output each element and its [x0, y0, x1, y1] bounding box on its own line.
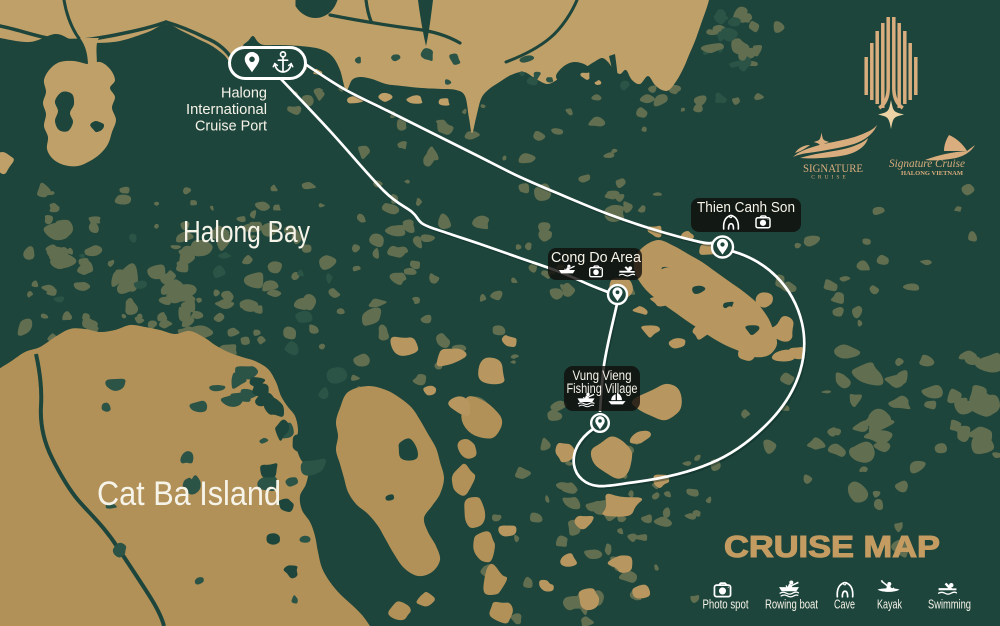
svg-text:Cong Do Area: Cong Do Area [551, 250, 642, 266]
svg-text:Kayak: Kayak [877, 598, 903, 612]
svg-text:Signature Cruise: Signature Cruise [889, 156, 966, 170]
svg-text:Halong Bay: Halong Bay [183, 214, 310, 249]
svg-text:Fishing Village: Fishing Village [567, 381, 638, 396]
svg-text:Photo spot: Photo spot [703, 598, 749, 612]
svg-text:Halong: Halong [221, 85, 267, 102]
svg-text:Cave: Cave [834, 598, 855, 612]
svg-text:HALONG VIETNAM: HALONG VIETNAM [901, 171, 963, 177]
svg-text:Rowing boat: Rowing boat [765, 598, 818, 612]
svg-text:Cruise Port: Cruise Port [195, 118, 268, 135]
svg-text:CRUISE MAP: CRUISE MAP [724, 529, 940, 564]
svg-text:CRUISE: CRUISE [811, 175, 849, 181]
svg-text:Swimming: Swimming [928, 598, 971, 612]
svg-text:Cat Ba Island: Cat Ba Island [97, 475, 281, 513]
svg-text:SIGNATURE: SIGNATURE [803, 163, 863, 175]
svg-text:Thien Canh Son: Thien Canh Son [697, 200, 795, 216]
svg-text:International: International [186, 101, 267, 118]
